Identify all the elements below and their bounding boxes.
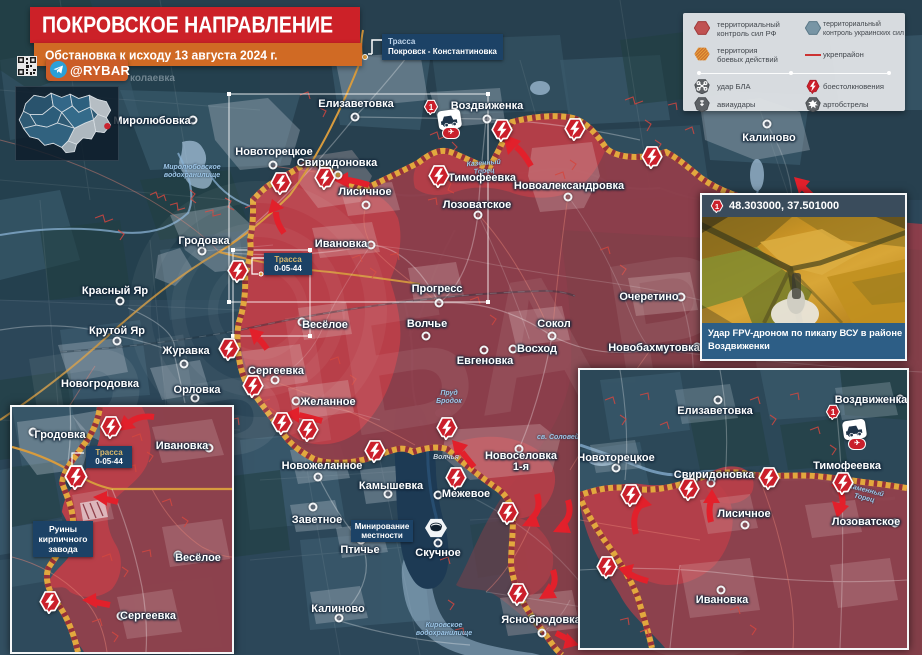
svg-text:1: 1 [831, 407, 836, 417]
svg-text:1: 1 [715, 202, 720, 211]
svg-text:1: 1 [429, 102, 434, 112]
